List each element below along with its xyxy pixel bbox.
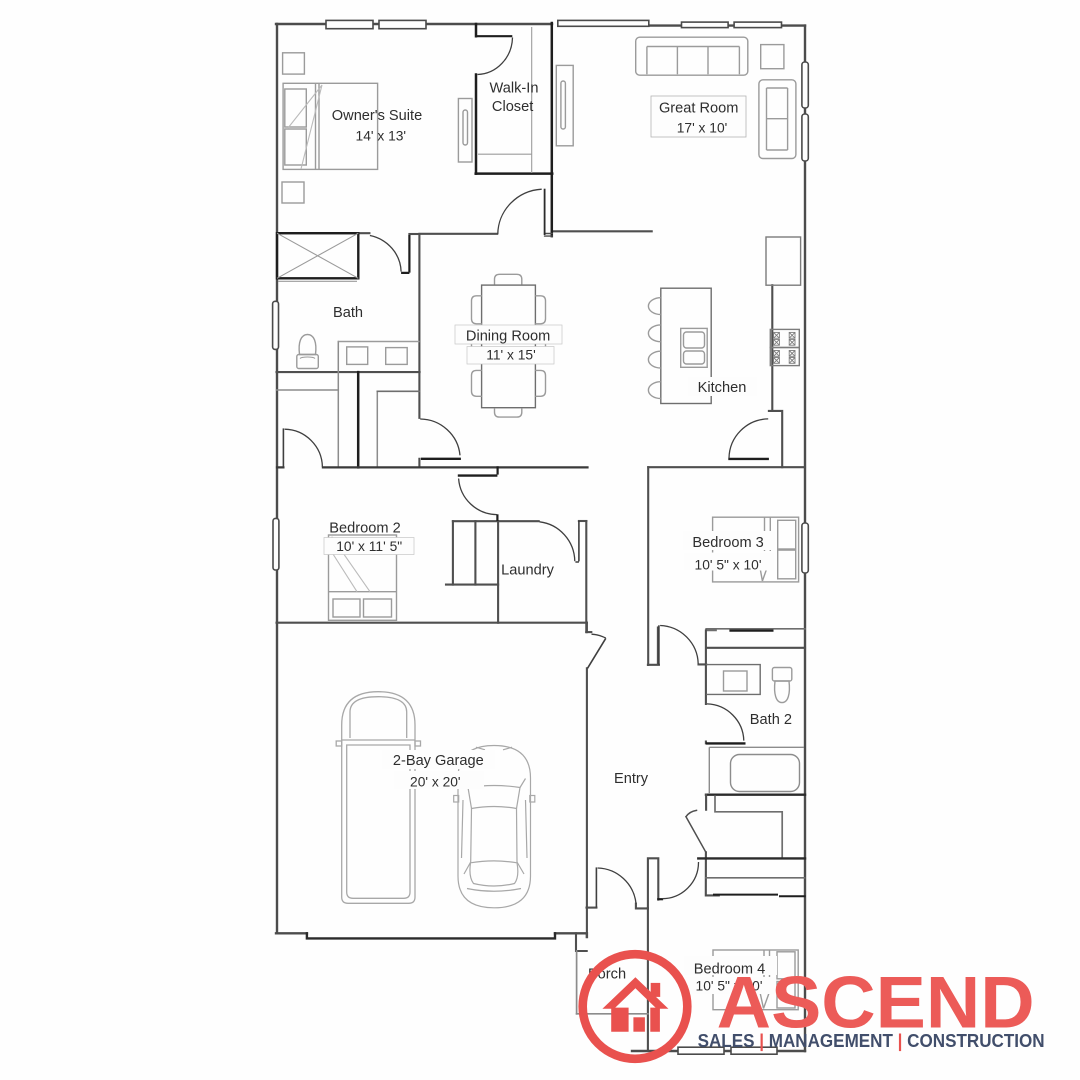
svg-text:14' x 13': 14' x 13' (356, 129, 407, 144)
svg-text:17' x 10': 17' x 10' (677, 121, 728, 136)
svg-text:Bedroom 3: Bedroom 3 (692, 535, 763, 551)
svg-text:Great Room: Great Room (659, 101, 738, 117)
svg-text:Dining Room: Dining Room (466, 328, 550, 344)
svg-text:Bath 2: Bath 2 (750, 712, 792, 728)
svg-text:11' x 15': 11' x 15' (486, 348, 536, 363)
svg-text:Bedroom 2: Bedroom 2 (329, 521, 400, 537)
svg-text:Walk-In: Walk-In (490, 81, 539, 97)
svg-text:Kitchen: Kitchen (698, 380, 747, 396)
svg-text:Owner's Suite: Owner's Suite (332, 108, 422, 124)
svg-text:Bath: Bath (333, 305, 363, 321)
svg-text:Laundry: Laundry (501, 563, 554, 579)
svg-text:2-Bay Garage: 2-Bay Garage (393, 753, 484, 769)
svg-text:10' 5" x 10': 10' 5" x 10' (695, 558, 762, 573)
svg-text:SALES | MANAGEMENT | CONSTRUCT: SALES | MANAGEMENT | CONSTRUCTION (698, 1031, 1045, 1051)
svg-text:20' x 20': 20' x 20' (410, 774, 461, 789)
svg-text:10' x 11' 5": 10' x 11' 5" (336, 539, 402, 554)
svg-text:Closet: Closet (492, 99, 533, 115)
svg-text:Entry: Entry (614, 771, 649, 787)
